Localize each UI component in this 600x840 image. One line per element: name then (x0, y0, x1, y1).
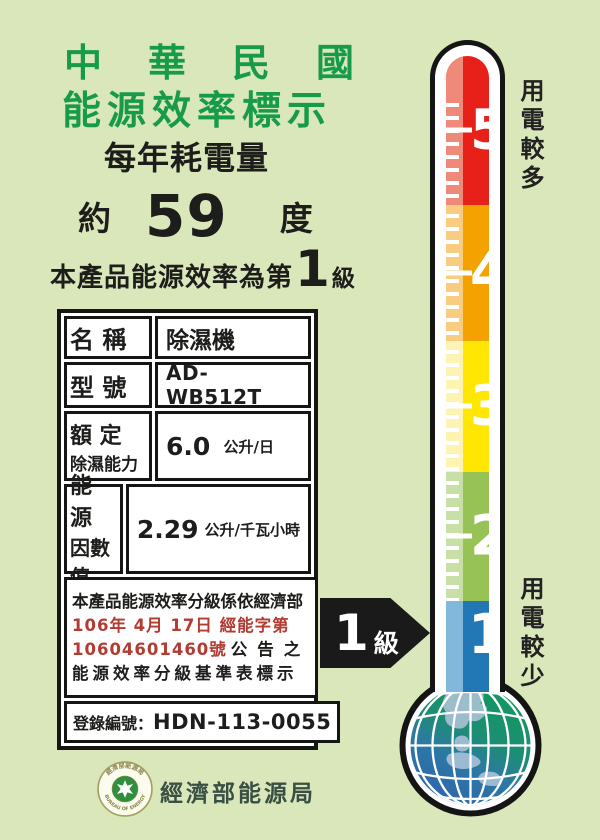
name-label-cell: 名 稱 (64, 316, 152, 359)
level-3-number: 3 (470, 379, 489, 434)
notice-line3-red: 10604601460號 (72, 640, 227, 659)
thermometer-fill: 5 4 3 2 1 (446, 56, 489, 692)
notice-line3-black: 公告之 (231, 640, 311, 659)
grade-arrow-suffix: 級 (374, 624, 399, 660)
thermometer-tube: 5 4 3 2 1 (430, 40, 505, 692)
major-tick (446, 534, 472, 539)
level-1-number: 1 (468, 607, 489, 662)
agency-name: 經濟部能源局 (160, 774, 316, 808)
consumption-unit: 度 (280, 192, 313, 240)
grade-text-before: 本產品能源效率為第 (50, 257, 293, 294)
model-value: AD-WB512T (166, 361, 300, 409)
level-5-number: 5 (470, 103, 489, 158)
capacity-value-cell: 6.0 公升/日 (155, 411, 311, 481)
registration-value: HDN-113-0055 (153, 710, 331, 734)
level-2-segment: 2 (446, 472, 489, 601)
page-subtitle: 能源效率標示 (62, 80, 358, 136)
energy-factor-value-cell: 2.29 公升/千瓦小時 (126, 484, 311, 574)
capacity-value: 6.0 (166, 432, 210, 461)
capacity-label-line1: 額 定 (70, 418, 146, 450)
thermometer-inner-ring: 5 4 3 2 1 (435, 45, 500, 692)
major-tick (446, 270, 472, 275)
bureau-of-energy-seal: 經濟部能源局 BUREAU OF ENERGY (96, 760, 154, 818)
table-row-name: 名 稱 除濕機 (64, 316, 311, 359)
consumption-prefix: 約 (78, 192, 111, 240)
annual-consumption-heading: 每年耗電量 (104, 133, 269, 179)
registration-label: 登錄編號： (73, 710, 153, 734)
major-tick (446, 404, 472, 409)
level-1-stripe (446, 601, 463, 692)
model-label: 型 號 (70, 368, 146, 403)
spec-table: 名 稱 除濕機 型 號 AD-WB512T 額 定 除濕能力 6.0 公升/日 … (57, 309, 318, 750)
energy-factor-unit: 公升/千瓦小時 (199, 519, 300, 540)
notice-cell: 本產品能源效率分級係依經濟部 106年 4月 17日 經能字第 10604601… (64, 577, 318, 698)
table-row-notice: 本產品能源效率分級係依經濟部 106年 4月 17日 經能字第 10604601… (64, 577, 311, 698)
more-power-label: 用電較多 (513, 78, 548, 194)
notice-line2: 106年 4月 17日 經能字第 (72, 614, 310, 638)
grade-arrow-number: 1 (334, 608, 369, 658)
page-title: 中華民國 (64, 32, 354, 87)
level-2-number: 2 (470, 509, 489, 564)
notice-line3: 10604601460號公告之 (72, 638, 310, 662)
level-1-segment: 1 (446, 601, 489, 692)
tick-marks (446, 94, 459, 205)
notice-line4: 能源效率分級基準表標示 (72, 662, 310, 686)
energy-factor-label-line1: 能 源 (70, 468, 117, 532)
name-value: 除濕機 (166, 321, 235, 355)
level-5-segment: 5 (446, 56, 489, 205)
model-label-cell: 型 號 (64, 362, 152, 408)
table-row-model: 型 號 AD-WB512T (64, 362, 311, 408)
energy-factor-value: 2.29 (137, 515, 199, 544)
table-row-energy-factor: 能 源 因數值 2.29 公升/千瓦小時 (64, 484, 311, 574)
notice-line1: 本產品能源效率分級係依經濟部 (72, 590, 310, 614)
name-label: 名 稱 (70, 320, 146, 355)
major-tick (446, 128, 472, 133)
name-value-cell: 除濕機 (155, 316, 311, 359)
level-3-segment: 3 (446, 341, 489, 472)
grade-arrow: 1 級 (320, 598, 430, 668)
model-value-cell: AD-WB512T (155, 362, 311, 408)
registration-cell: 登錄編號： HDN-113-0055 (64, 701, 340, 743)
page-title-text: 中華民國 (64, 32, 400, 87)
table-row-registration: 登錄編號： HDN-113-0055 (64, 701, 311, 743)
grade-line: 本產品能源效率為第 1 級 (50, 240, 360, 298)
capacity-unit: 公升/日 (218, 436, 274, 457)
level-4-number: 4 (470, 245, 489, 300)
energy-factor-label-cell: 能 源 因數值 (64, 484, 123, 574)
grade-value: 1 (295, 240, 330, 298)
level-4-segment: 4 (446, 205, 489, 341)
grade-text-after: 級 (332, 259, 355, 293)
